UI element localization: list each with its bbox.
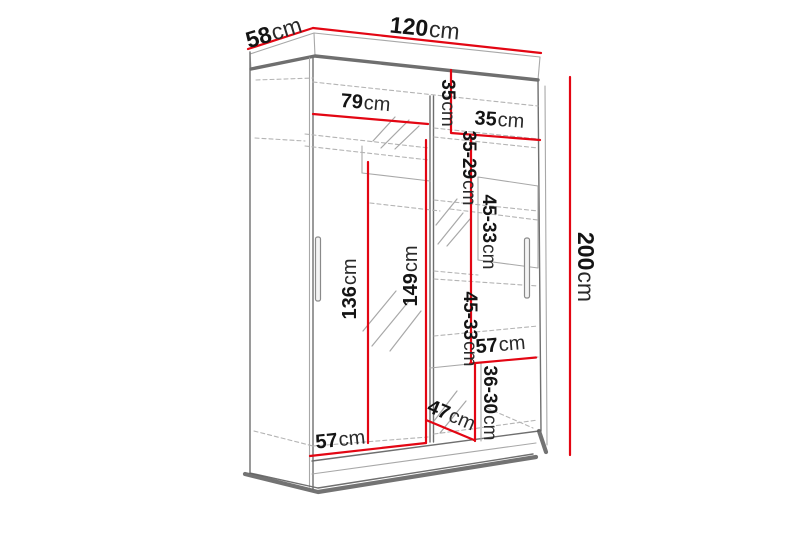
left-shelf-line <box>362 173 430 181</box>
glass-hatch-3b <box>372 301 409 346</box>
wardrobe-dimension-diagram: 58cm 120cm 200cm 79cm 35cm 35cm 35-29cm … <box>0 0 800 533</box>
label-right-section-height: 149cm <box>400 245 422 306</box>
right-shelf3-dashed-b <box>434 279 538 286</box>
glass-hatch-2a <box>436 199 457 225</box>
label-depth: 58cm <box>242 12 304 54</box>
label-top-shelf-width: 35cm <box>474 107 525 132</box>
label-shelf-width-upper: 57cm <box>475 332 527 358</box>
floor-dashed-side <box>254 431 313 446</box>
dimension-lines <box>248 28 570 456</box>
ceiling-dashed-left <box>256 78 313 80</box>
label-gap-36-30: 36-30cm <box>479 366 500 441</box>
label-gap-45-33-upper: 45-33cm <box>478 195 499 270</box>
label-width: 120cm <box>389 11 461 44</box>
plinth-bottom-edge <box>318 454 533 488</box>
floor-shadow <box>245 457 536 492</box>
top-panel-right-cap <box>538 57 540 80</box>
label-left-section-height: 136cm <box>339 258 361 319</box>
right-corner-shadow <box>539 431 546 452</box>
right-door-handle <box>525 238 530 298</box>
label-top-section-height: 35cm <box>437 79 458 126</box>
label-gap-35-29: 35-29cm <box>458 131 479 206</box>
glass-hatch-3c <box>390 311 421 351</box>
glass-hatch-2c <box>447 219 470 246</box>
label-rail-width: 79cm <box>340 90 392 116</box>
rail-dashed-2 <box>305 146 429 160</box>
left-door-handle <box>316 237 321 301</box>
glass-hatch-1b <box>381 120 409 148</box>
glass-hatch-1c <box>395 126 419 149</box>
top-panel-apex-cap <box>314 33 315 56</box>
rail-dashed-1 <box>305 134 429 148</box>
rail-dashed-side <box>255 138 305 141</box>
carcass-top-edge <box>251 56 538 80</box>
label-height: 200cm <box>573 232 599 302</box>
dim-line-rail-79 <box>313 114 428 124</box>
right-side-sliver-edge <box>545 86 547 445</box>
diagram-canvas: 58cm 120cm 200cm 79cm 35cm 35cm 35-29cm … <box>0 0 800 533</box>
